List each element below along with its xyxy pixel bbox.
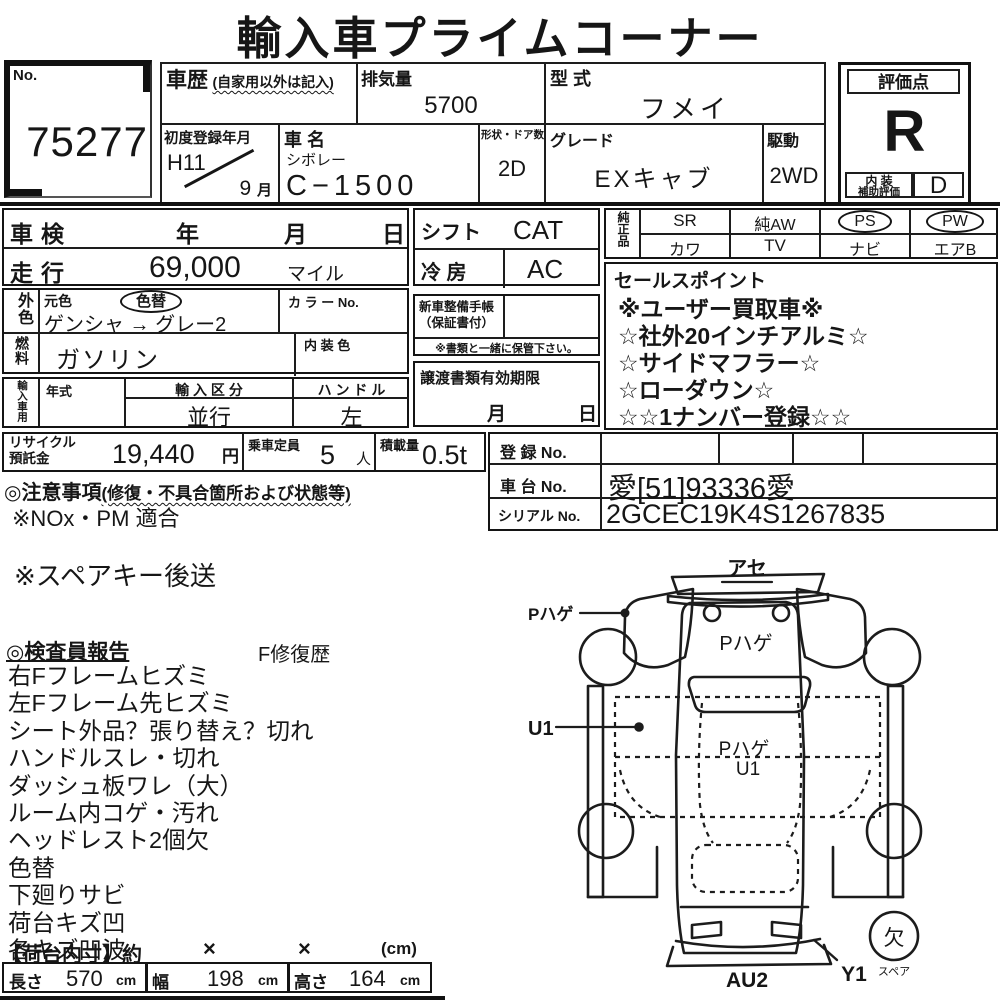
y1-label: Y1 [841, 963, 867, 986]
reg-cell-divider [718, 434, 720, 463]
capacity-value: 5 [320, 440, 335, 471]
equip-ps: PS [821, 210, 909, 233]
col-divider [294, 332, 296, 376]
corner-mark [143, 66, 150, 92]
spare-label: スペア [878, 966, 910, 978]
mileage-label: 走行 [10, 254, 72, 288]
exterior-color-vlabel: 外色 [11, 292, 35, 326]
drive-value: 2WD [764, 163, 824, 189]
row-divider [415, 337, 598, 339]
transfer-doc-box: 譲渡書類有効期限 月 日 [413, 361, 600, 427]
shape-doors-value: 2D [480, 156, 544, 182]
height-unit: cm [400, 972, 420, 988]
chassis-no-label: 車 台 No. [500, 473, 567, 497]
col-divider [374, 434, 376, 470]
keep-note: ※書類と一緒に保管下さい。 [415, 340, 598, 356]
service-book-label: 新車整備手帳 （保証書付） [419, 299, 494, 331]
shaken-day-unit: 日 [382, 215, 405, 249]
bed-dims-x2: × [298, 936, 311, 962]
equip-airbag: エアB [911, 236, 999, 260]
left-door-dashed-arc [620, 770, 660, 817]
equip-kawa: カワ [641, 236, 729, 260]
first-registration-month: 9 月 [239, 177, 272, 201]
bed-dims-unit: (cm) [381, 939, 417, 959]
shaken-month-unit: 月 [284, 215, 307, 249]
drive-label: 駆動 [767, 127, 824, 151]
import-box: 輸入車用 年式 輸 入 区 分 並行 ハ ン ド ル 左 [2, 377, 409, 428]
recycle-box: リサイクル預託金 19,440 円 乗車定員 5 人 積載量 0.5t [2, 432, 486, 472]
shape-doors-cell: 形状・ドア数 2D [478, 123, 546, 205]
interior-score-cell: D [913, 172, 964, 198]
year-model-label: 年式 [46, 381, 72, 400]
color-fuel-box: 外色 元色 色替 ゲンシャ → グレー2 カ ラ ー No. 燃料 ガソリン 内… [2, 288, 409, 374]
col-divider [600, 434, 602, 529]
inspector-item: 右Fフレームヒズミ [8, 663, 314, 690]
inspector-item: ヘッドレスト2個欠 [8, 827, 314, 854]
history-label: 車歴 [166, 69, 208, 92]
inspector-items: 右Fフレームヒズミ 左Fフレーム先ヒズミ シート外品？張り替え？切れ ハンドルス… [8, 663, 314, 964]
capacity-unit: 人 [356, 448, 371, 469]
evaluation-score: R [841, 97, 968, 167]
col-divider [503, 296, 505, 337]
tailgate-latch-right [773, 605, 789, 621]
load-label: 積載量 [380, 435, 419, 454]
right-bottom-corner [833, 847, 903, 897]
page-title: 輸入車プライムコーナー [155, 2, 845, 67]
import-class-label: 輸 入 区 分 [126, 380, 292, 400]
car-damage-diagram: アセ Pハゲ Pハゲ U1 Pハゲ U1 AU2 Y1 欠 スペア [520, 555, 1000, 1000]
serial-no-value: 2GCEC19K4S1267835 [606, 499, 885, 530]
headlight-left [692, 922, 721, 938]
shift-value: CAT [513, 215, 563, 246]
model-code-label: 型 式 [550, 65, 824, 91]
corner-mark [10, 189, 42, 196]
registration-box: 登 録 No. 車 台 No. 愛[51]93336愛 シリアル No. 2GC… [488, 432, 998, 531]
mileage-value: 69,000 [149, 251, 241, 285]
u1-leader-dot [636, 724, 643, 731]
col-divider [278, 290, 280, 332]
inspector-item: 下廻りサビ [8, 882, 314, 909]
import-class-value: 並行 [126, 400, 292, 432]
displacement-label: 排気量 [361, 65, 544, 90]
cab-dashed-right [787, 703, 801, 843]
displacement-cell: 排気量 5700 [356, 62, 546, 125]
right-door-leaf [797, 589, 866, 667]
p-hage-leader-dot [622, 610, 628, 616]
recycle-value: 19,440 [112, 439, 195, 470]
p-hage-bed-label: Pハゲ [719, 632, 772, 655]
handle-value: 左 [294, 400, 409, 432]
col-divider [38, 290, 40, 372]
left-bottom-corner [588, 847, 657, 897]
interior-color-label: 内 装 色 [304, 335, 350, 354]
first-registration-label: 初度登録年月 [164, 127, 278, 148]
fuel-vlabel: 燃料 [12, 336, 32, 366]
grade-label: グレード [550, 127, 762, 151]
headlight-right [772, 922, 801, 938]
right-sill-strip [888, 686, 903, 897]
history-cell: 車歴 (自家用以外は記入) [160, 62, 358, 125]
row-divider [415, 248, 598, 250]
inspector-item: ルーム内コゲ・汚れ [8, 800, 314, 827]
evaluation-box: 評価点 R 内 装 補助評価 D [838, 62, 971, 205]
mileage-unit: マイル [287, 259, 344, 286]
auction-number-value: 75277 [26, 118, 148, 166]
inspector-item: 荷台キズ凹 [8, 910, 314, 937]
transfer-label: 譲渡書類有効期限 [420, 367, 540, 388]
shape-doors-label: 形状・ドア数 [481, 127, 544, 142]
length-unit: cm [116, 972, 136, 988]
history-note: (自家用以外は記入) [212, 74, 333, 90]
serial-no-label: シリアル No. [498, 506, 580, 526]
bed-dims-table: 長さ 570 cm 幅 198 cm 高さ 164 cm [2, 962, 432, 993]
reg-cell-divider [862, 434, 864, 463]
windshield-dashed [692, 845, 798, 892]
rear-window [689, 677, 810, 712]
tailgate-latch-left [704, 605, 720, 621]
first-registration-year: H11 [167, 150, 206, 176]
au2-label: AU2 [726, 969, 768, 992]
fuel-value: ガソリン [56, 340, 160, 375]
model-code-cell: 型 式 フメイ [544, 62, 826, 125]
sales-point-item: ☆☆1ナンバー登録☆☆ [618, 398, 851, 432]
height-label: 高さ [294, 968, 328, 993]
equip-navi: ナビ [821, 236, 909, 260]
color-no-label: カ ラ ー No. [288, 292, 359, 311]
grade-cell: グレード EXキャブ [544, 123, 764, 205]
transfer-day: 日 [578, 399, 597, 426]
equip-aw: 純AW [731, 211, 819, 235]
col-divider [38, 379, 40, 426]
length-label: 長さ [9, 968, 43, 993]
equip-tv: TV [731, 236, 819, 256]
interior-label2: 補助評価 [847, 187, 911, 198]
inspector-item: ダッシュ板ワレ（大） [8, 773, 314, 800]
maker-name: シボレー [286, 149, 478, 170]
right-front-wheel [864, 629, 920, 685]
shift-ac-box: シフト CAT 冷 房 AC [413, 208, 600, 286]
import-vlabel: 輸入車用 [15, 380, 30, 422]
spare-key-note: ※スペアキー後送 [14, 556, 216, 593]
width-unit: cm [258, 972, 278, 988]
y1-leader-line [814, 940, 837, 960]
capacity-label: 乗車定員 [248, 435, 300, 454]
car-name-value: C−1500 [286, 170, 478, 203]
cab-dashed-left [699, 703, 713, 843]
sales-points-label: セールスポイント [614, 266, 766, 293]
ac-value: AC [527, 254, 563, 285]
p-hage-cab-label: Pハゲ [719, 738, 770, 760]
auction-number-label: No. [13, 67, 37, 84]
width-value: 198 [207, 966, 244, 992]
recycle-unit: 円 [222, 442, 239, 467]
u1-left-label: U1 [528, 718, 554, 740]
nox-note: ※NOx・PM 適合 [12, 501, 180, 533]
grade-value: EXキャブ [546, 159, 762, 194]
equip-pw: PW [911, 210, 999, 233]
ac-label: 冷 房 [421, 256, 467, 285]
transfer-month: 月 [487, 399, 506, 426]
cutoff-row-line [0, 996, 445, 1000]
inspector-item: 左Fフレーム先ヒズミ [8, 690, 314, 717]
handle-label: ハ ン ド ル [294, 380, 409, 400]
recycle-label: リサイクル預託金 [9, 435, 76, 467]
p-hage-door-label: Pハゲ [528, 604, 573, 624]
right-rear-wheel [867, 804, 921, 858]
shaken-mileage-box: 車検 年 月 日 走行 69,000 マイル [2, 208, 409, 286]
model-code-value: フメイ [546, 89, 824, 126]
shaken-year-unit: 年 [176, 215, 199, 249]
inspector-item: 色替 [8, 855, 314, 882]
col-divider [242, 434, 244, 470]
height-value: 164 [349, 966, 386, 992]
shaken-label: 車検 [10, 215, 72, 249]
length-value: 570 [66, 966, 103, 992]
inspector-item: ハンドルスレ・切れ [8, 745, 314, 772]
displacement-value: 5700 [358, 92, 544, 120]
sales-points-box: セールスポイント ※ユーザー買取車※ ☆社外20インチアルミ☆ ☆サイドマフラー… [604, 262, 998, 430]
right-door-dashed-arc [830, 770, 870, 817]
u1-cab-label: U1 [736, 759, 760, 780]
inspector-item: シート外品？張り替え？切れ [8, 718, 314, 745]
equipment-vlabel: 純正品 [615, 211, 632, 247]
ase-label: アセ [727, 558, 767, 580]
section-divider [0, 202, 1000, 206]
col-divider [287, 964, 290, 991]
color-value: ゲンシャ → グレー2 [44, 308, 226, 337]
inspector-heading: ◎検査員報告 [6, 636, 129, 666]
car-name-cell: 車 名 シボレー C−1500 [278, 123, 480, 205]
reg-cell-divider [792, 434, 794, 463]
col-divider [145, 964, 148, 991]
col-divider [503, 248, 505, 288]
service-book-box: 新車整備手帳 （保証書付） ※書類と一緒に保管下さい。 [413, 294, 600, 356]
equip-sr: SR [641, 211, 729, 231]
bed-dims-x1: × [203, 936, 216, 962]
ketsu-label: 欠 [884, 927, 905, 950]
load-value: 0.5t [422, 440, 467, 471]
auction-number-box: No. 75277 [4, 60, 152, 198]
equipment-box: 純正品 SR 純AW PS PW カワ TV ナビ エアB [604, 208, 998, 259]
reg-no-label: 登 録 No. [500, 439, 567, 463]
interior-score-label-cell: 内 装 補助評価 [845, 172, 913, 198]
evaluation-score-label: 評価点 [847, 69, 960, 94]
shift-label: シフト [421, 216, 481, 245]
drive-cell: 駆動 2WD [762, 123, 826, 205]
left-sill-strip [588, 686, 603, 897]
width-label: 幅 [152, 968, 169, 993]
first-registration-cell: 初度登録年月 H11 9 月 [160, 123, 280, 205]
